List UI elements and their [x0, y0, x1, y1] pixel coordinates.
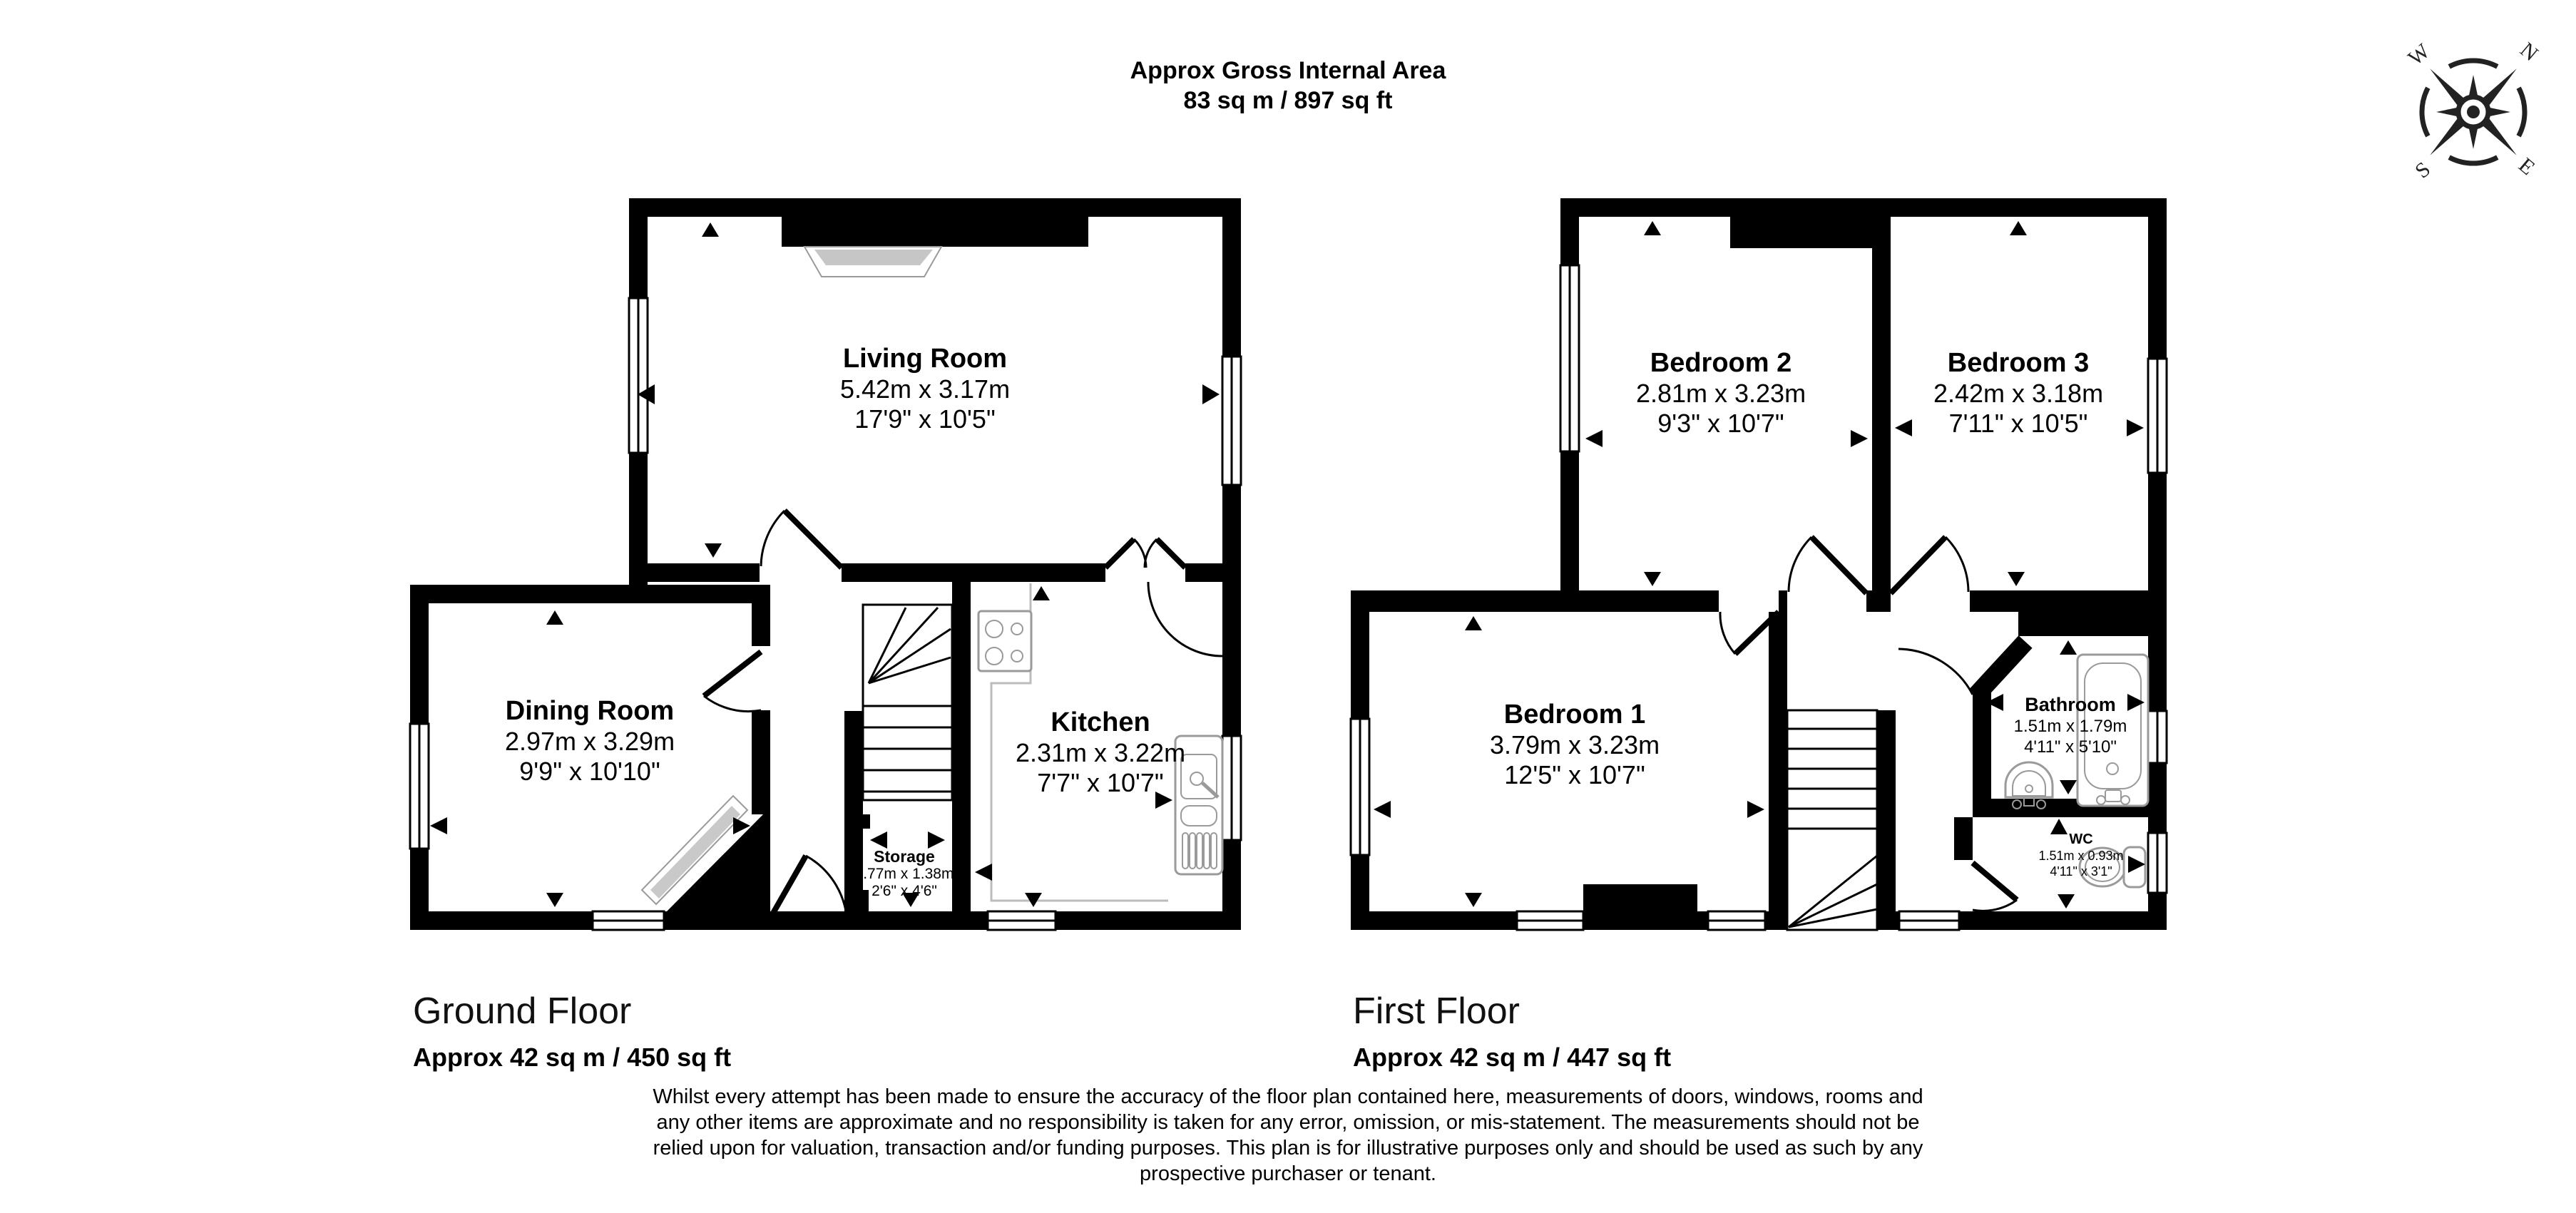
room-metric: 2.81m x 3.23m — [1636, 379, 1806, 409]
door-leaf — [704, 652, 761, 696]
room-name: Dining Room — [505, 695, 675, 727]
room-name: WC — [2038, 831, 2123, 848]
chimney-breast — [782, 217, 1088, 247]
room-imperial: 4'11" x 5'10" — [2014, 737, 2127, 757]
room-imperial: 9'9" x 10'10" — [505, 757, 675, 787]
compass-hub-dot — [2467, 106, 2480, 118]
door-swing — [761, 511, 784, 566]
room-name: Storage — [855, 847, 954, 866]
window — [1708, 911, 1765, 930]
disclaimer-line-1: Whilst every attempt has been made to en… — [539, 1084, 2037, 1110]
room-label-kitchen: Kitchen 2.31m x 3.22m 7'7" x 10'7" — [1016, 707, 1185, 798]
room-imperial: 7'7" x 10'7" — [1016, 768, 1185, 798]
window — [410, 724, 429, 849]
room-label-living-room: Living Room 5.42m x 3.17m 17'9" x 10'5" — [840, 343, 1010, 434]
room-label-bedroom-2: Bedroom 2 2.81m x 3.23m 9'3" x 10'7" — [1636, 347, 1806, 439]
room-imperial: 12'5" x 10'7" — [1490, 760, 1660, 790]
room-name: Kitchen — [1016, 707, 1185, 738]
staircase — [1787, 710, 1877, 930]
door-leaf — [1973, 863, 2017, 900]
window — [1560, 265, 1579, 451]
window — [1351, 719, 1369, 855]
door-swing — [704, 696, 761, 712]
door-swing — [1720, 612, 1735, 654]
disclaimer-line-4: prospective purchaser or tenant. — [539, 1161, 2037, 1187]
door-leaf — [1105, 539, 1134, 568]
room-imperial: 17'9" x 10'5" — [840, 404, 1010, 434]
room-metric: 5.42m x 3.17m — [840, 374, 1010, 404]
window — [1517, 911, 1583, 930]
window — [593, 911, 664, 930]
door-swing — [1148, 582, 1222, 656]
first-floor-walls — [1351, 198, 2167, 930]
disclaimer: Whilst every attempt has been made to en… — [539, 1084, 2037, 1187]
room-name: Bathroom — [2014, 694, 2127, 716]
door-leaf — [784, 511, 842, 568]
ground-floor-windows — [410, 298, 1241, 930]
room-metric: 3.79m x 3.23m — [1490, 730, 1660, 760]
window — [2148, 711, 2167, 763]
door-swing — [1973, 900, 2017, 911]
room-label-wc: WC 1.51m x 0.93m 4'11" x 3'1" — [2038, 831, 2123, 879]
disclaimer-line-2: any other items are approximate and no r… — [539, 1110, 2037, 1135]
room-metric: 2.42m x 3.18m — [1933, 379, 2103, 409]
chimney-breast — [1583, 884, 1697, 911]
room-metric: 2.31m x 3.22m — [1016, 738, 1185, 768]
room-name: Bedroom 3 — [1933, 347, 2103, 379]
gross-internal-area-header: Approx Gross Internal Area 83 sq m / 897… — [0, 56, 2576, 116]
window — [2148, 833, 2167, 893]
room-label-bedroom-1: Bedroom 1 3.79m x 3.23m 12'5" x 10'7" — [1490, 699, 1660, 790]
first-floor-area: Approx 42 sq m / 447 sq ft — [1353, 1043, 1671, 1073]
window — [1222, 357, 1241, 485]
room-name: Bedroom 1 — [1490, 699, 1660, 730]
compass-w: W — [2403, 39, 2434, 71]
header-line-1: Approx Gross Internal Area — [0, 56, 2576, 86]
ground-floor-title: Ground Floor — [413, 990, 631, 1033]
hob-icon — [978, 611, 1031, 671]
door-swing — [1946, 537, 1968, 592]
room-metric: 1.51m x 1.79m — [2014, 716, 2127, 737]
room-metric: 2.97m x 3.29m — [505, 727, 675, 757]
room-label-storage: Storage 0.77m x 1.38m 2'6" x 4'6" — [855, 847, 954, 900]
header-line-2: 83 sq m / 897 sq ft — [0, 86, 2576, 116]
compass-s: S — [2411, 158, 2435, 183]
room-imperial: 2'6" x 4'6" — [855, 883, 954, 900]
room-label-bedroom-3: Bedroom 3 2.42m x 3.18m 7'11" x 10'5" — [1933, 347, 2103, 439]
room-metric: 0.77m x 1.38m — [855, 866, 954, 883]
door-leaf — [1811, 537, 1866, 593]
compass-n: N — [2515, 38, 2542, 66]
fireplace-icon — [804, 247, 941, 277]
door-leaf — [1891, 537, 1946, 593]
first-floor-title: First Floor — [1353, 990, 1520, 1033]
room-name: Living Room — [840, 343, 1010, 374]
ground-floor-plan — [407, 193, 1248, 956]
room-name: Bedroom 2 — [1636, 347, 1806, 379]
disclaimer-line-3: relied upon for valuation, transaction a… — [539, 1135, 2037, 1161]
room-label-dining-room: Dining Room 2.97m x 3.29m 9'9" x 10'10" — [505, 695, 675, 787]
room-imperial: 4'11" x 3'1" — [2038, 864, 2123, 879]
window — [2148, 359, 2167, 473]
room-metric: 1.51m x 0.93m — [2038, 848, 2123, 864]
compass-rose-icon: N W S E — [2402, 30, 2552, 194]
door-leaf — [1157, 539, 1185, 568]
window — [1222, 736, 1241, 840]
room-imperial: 9'3" x 10'7" — [1636, 409, 1806, 439]
window — [1899, 911, 1959, 930]
room-label-bathroom: Bathroom 1.51m x 1.79m 4'11" x 5'10" — [2014, 694, 2127, 757]
floorplan-page: Approx Gross Internal Area 83 sq m / 897… — [0, 0, 2576, 1213]
window — [988, 911, 1056, 930]
staircase — [863, 605, 952, 800]
door-swing — [1789, 537, 1811, 592]
compass-e: E — [2514, 153, 2539, 180]
ground-floor-walls — [410, 198, 1241, 930]
door-swing — [1898, 649, 1973, 695]
window — [629, 298, 648, 453]
room-imperial: 7'11" x 10'5" — [1933, 409, 2103, 439]
chimney-breast — [1730, 217, 1883, 248]
ground-floor-area: Approx 42 sq m / 450 sq ft — [413, 1043, 731, 1073]
